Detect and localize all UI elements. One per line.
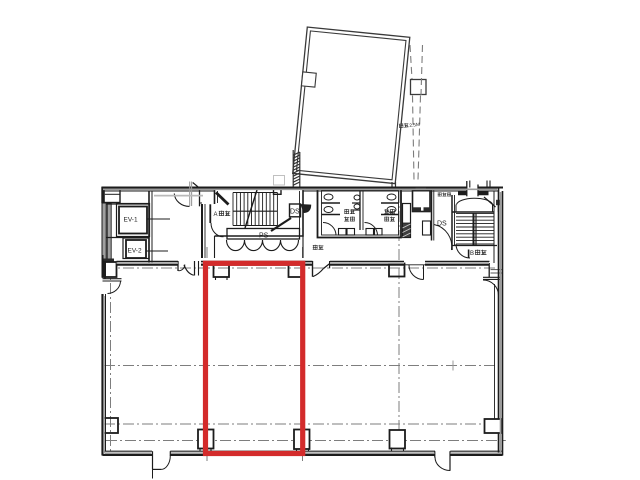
svg-text:EV-1: EV-1 bbox=[124, 217, 138, 224]
svg-text:PS: PS bbox=[259, 233, 269, 240]
svg-text:B: B bbox=[470, 251, 474, 257]
svg-text:A: A bbox=[214, 212, 218, 218]
svg-text:2.5M: 2.5M bbox=[409, 122, 420, 129]
svg-text:EV-2: EV-2 bbox=[128, 248, 142, 255]
svg-text:DS: DS bbox=[290, 209, 300, 216]
